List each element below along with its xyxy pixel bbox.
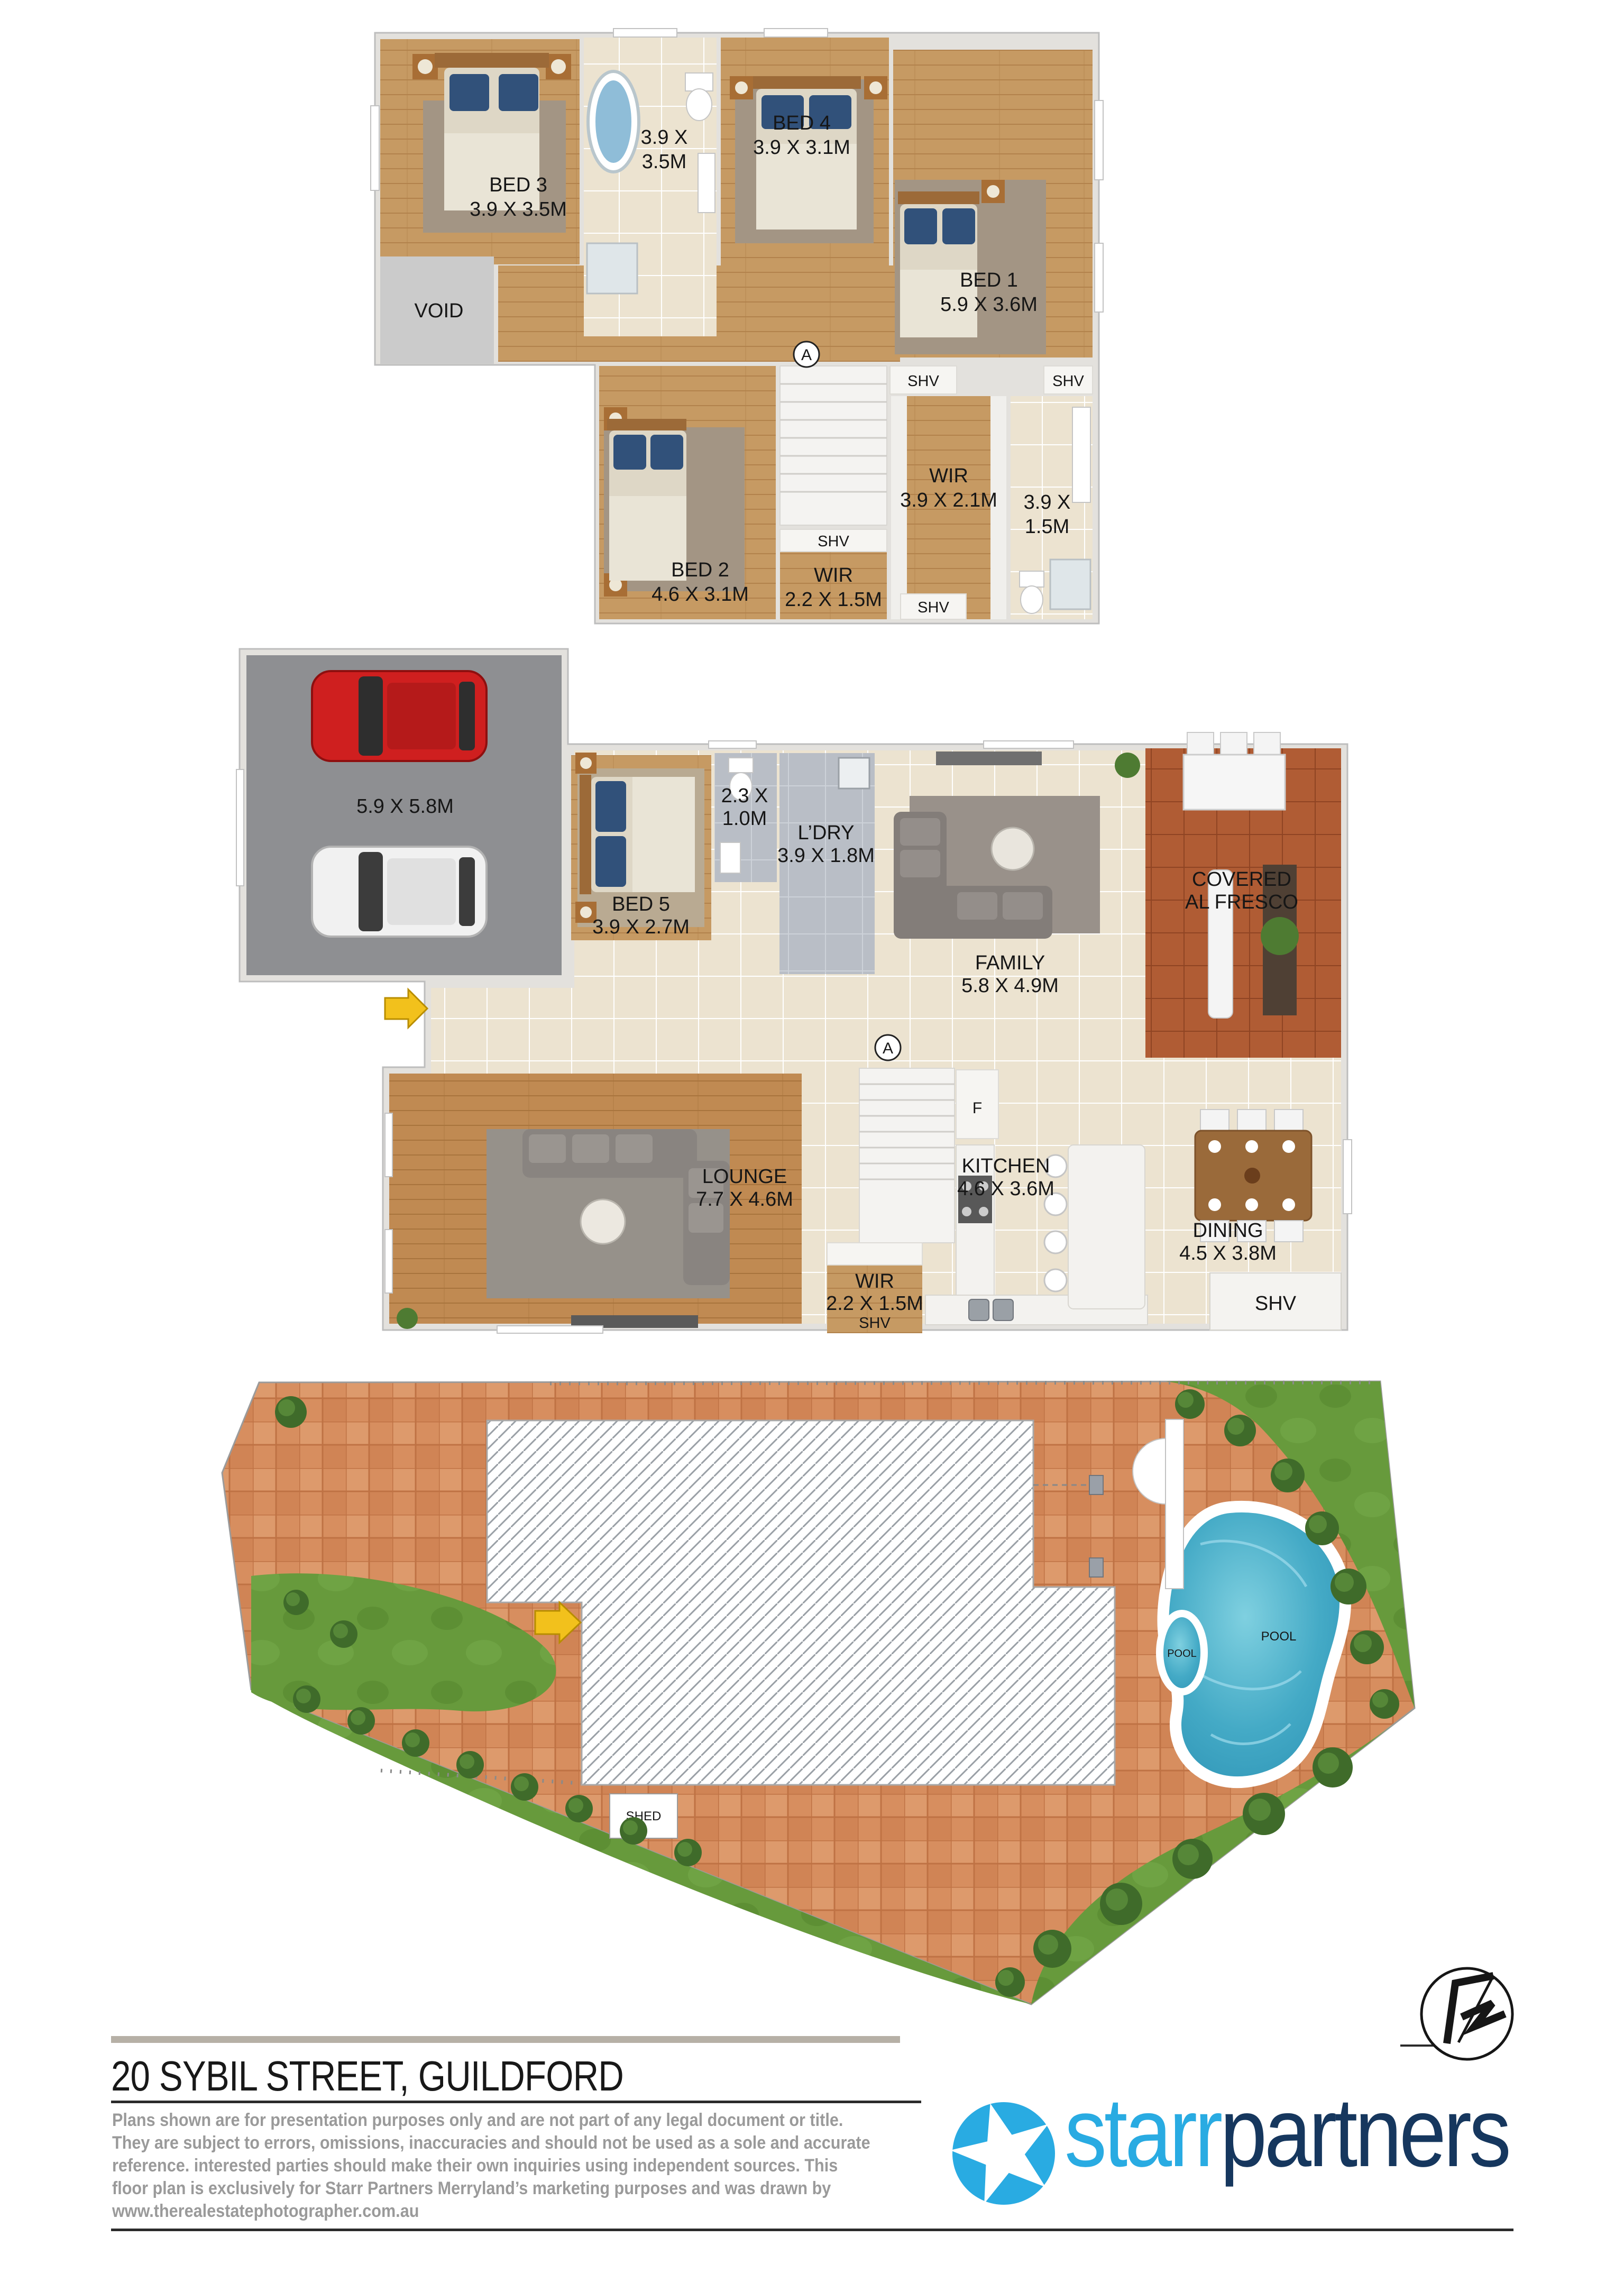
shv-shelf: SHV (1210, 1273, 1341, 1330)
starr-partners-logo: starrpartners (951, 2101, 1533, 2222)
bed4-dims: 3.9 X 3.1M (753, 136, 850, 159)
bed1-label: BED 1 (960, 269, 1018, 291)
disclaimer-line: reference. interested parties should mak… (112, 2155, 870, 2177)
ground-floor-plan: 5.9 X 5.8M BED 5 3.9 X 2.7M 2.3 X 1.0M (233, 637, 1396, 1351)
logo-part1: starr (1065, 2078, 1220, 2187)
room-lounge: LOUNGE 7.7 X 4.6M (389, 1074, 802, 1329)
disclaimer-line: Plans shown are for presentation purpose… (112, 2109, 870, 2132)
fridge-marker: F (972, 1099, 982, 1117)
bed3-label: BED 3 (489, 174, 547, 196)
wir-ground-dims: 2.2 X 1.5M (826, 1292, 923, 1315)
laundry-label: L’DRY (797, 822, 854, 844)
room-bed1: BED 1 5.9 X 3.6M (893, 50, 1093, 357)
toilet-icon (685, 73, 713, 121)
coffee-table-icon (581, 1199, 625, 1244)
logo-part2: partners (1220, 2078, 1509, 2187)
dining-dims: 4.5 X 3.8M (1179, 1242, 1277, 1264)
star-logo-icon (951, 2101, 1057, 2206)
room-garage: 5.9 X 5.8M (246, 655, 562, 975)
shv-label: SHV (1052, 373, 1084, 390)
bed5-dims: 3.9 X 2.7M (592, 916, 690, 938)
room-laundry: L’DRY 3.9 X 1.8M (777, 753, 875, 974)
void-area: VOID (380, 256, 494, 364)
room-bed2: BED 2 4.6 X 3.1M (599, 366, 776, 619)
tv-cabinet-icon (936, 751, 1042, 765)
vanity-icon (698, 153, 715, 213)
disclaimer-line: www.therealestatephotographer.com.au (112, 2200, 870, 2223)
pool-main-label: POOL (1261, 1629, 1297, 1644)
laundry-tub-icon (839, 758, 869, 789)
shv-label: SHV (818, 533, 849, 550)
site-plan: POOL POOL SHED (206, 1375, 1423, 2062)
lounge-dims: 7.7 X 4.6M (696, 1188, 793, 1211)
ensuite-dims-line1: 3.9 X (1024, 491, 1071, 514)
section-marker-letter: A (801, 346, 812, 364)
powder-dims-line1: 2.3 X (721, 785, 768, 807)
island-bench (1068, 1145, 1145, 1309)
dining-label: DINING (1193, 1220, 1263, 1242)
wir2-upper-dims: 2.2 X 1.5M (785, 589, 882, 611)
kitchen-dims: 4.6 X 3.6M (957, 1178, 1054, 1200)
disclaimer-text: Plans shown are for presentation purpose… (112, 2109, 870, 2223)
floorplan-page: BED 3 3.9 X 3.5M 3.9 X 3.5M BED 4 (0, 0, 1624, 2292)
room-wir2-upper: SHV WIR 2.2 X 1.5M (780, 529, 887, 619)
shv-shelf: SHV (901, 594, 966, 619)
bed2-label: BED 2 (671, 559, 729, 581)
alfresco-label-line2: AL FRESCO (1185, 891, 1298, 913)
disclaimer-line: floor plan is exclusively for Starr Part… (112, 2177, 870, 2200)
room-bed5: BED 5 3.9 X 2.7M (571, 753, 711, 940)
shv-shelf: SHV (1044, 366, 1093, 394)
bath-dims-line2: 3.5M (642, 151, 686, 173)
spa-pool: POOL (1160, 1613, 1204, 1692)
kitchen-label: KITCHEN (962, 1155, 1050, 1177)
pool-spa-label: POOL (1167, 1648, 1197, 1660)
void-label: VOID (415, 300, 464, 322)
logo-wordmark: starrpartners (1065, 2076, 1509, 2189)
fridge-nook: F (956, 1070, 998, 1139)
bed4-label: BED 4 (773, 112, 831, 134)
section-marker-a: A (875, 1035, 901, 1060)
room-bathroom: 3.9 X 3.5M (584, 38, 717, 336)
laundry-dims: 3.9 X 1.8M (777, 845, 875, 867)
room-wir-upper: WIR 3.9 X 2.1M (891, 396, 1006, 619)
entry-arrow-icon (385, 989, 427, 1028)
wir2-upper-label: WIR (814, 564, 853, 586)
room-dining: DINING 4.5 X 3.8M (1179, 1110, 1311, 1264)
bed2-dims: 4.6 X 3.1M (652, 583, 749, 606)
page-title: 20 SYBIL STREET, GUILDFORD (111, 2052, 623, 2101)
room-ensuite: 3.9 X 1.5M (1011, 396, 1093, 619)
toilet-icon (1020, 571, 1044, 613)
section-marker-letter: A (883, 1040, 893, 1057)
wir-ground-label: WIR (855, 1270, 894, 1292)
bathtub-icon (588, 71, 639, 172)
shower-icon (1050, 560, 1090, 609)
stairs-icon (859, 1068, 955, 1243)
shv-label: SHV (859, 1315, 891, 1332)
room-alfresco: COVERED AL FRESCO (1145, 732, 1341, 1058)
footer-rule (111, 2229, 1513, 2231)
stairs-icon (780, 366, 887, 525)
section-marker-a: A (794, 342, 819, 367)
family-dims: 5.8 X 4.9M (961, 975, 1059, 997)
shv-label: SHV (917, 599, 949, 616)
plant-icon (1115, 753, 1140, 778)
room-bed3: BED 3 3.9 X 3.5M (380, 39, 580, 264)
vanity-icon (1072, 407, 1090, 502)
garage-dims: 5.9 X 5.8M (356, 795, 454, 818)
ensuite-dims-line2: 1.5M (1025, 516, 1069, 538)
shv-label: SHV (907, 373, 939, 390)
outdoor-table-icon (1183, 732, 1285, 810)
shv-label: SHV (1255, 1292, 1297, 1315)
wir-upper-dims: 3.9 X 2.1M (900, 489, 997, 511)
compass-north-icon (1413, 1963, 1524, 2074)
white-car-icon (312, 847, 487, 937)
bed5-label: BED 5 (612, 893, 670, 915)
powder-dims-line2: 1.0M (722, 808, 767, 830)
red-car-icon (312, 671, 487, 761)
upper-floor-plan: BED 3 3.9 X 3.5M 3.9 X 3.5M BED 4 (365, 21, 1132, 629)
title-rule (111, 2101, 921, 2103)
disclaimer-line: They are subject to errors, omissions, i… (112, 2132, 870, 2155)
wir-upper-label: WIR (929, 465, 968, 487)
room-powder: 2.3 X 1.0M (714, 753, 777, 882)
house-footprint (487, 1420, 1115, 1785)
lounge-label: LOUNGE (702, 1166, 787, 1188)
title-accent-bar (111, 2036, 900, 2043)
basin-icon (720, 842, 740, 873)
room-wir-ground: WIR 2.2 X 1.5M SHV (826, 1243, 923, 1333)
family-label: FAMILY (975, 952, 1045, 974)
bath-dims-line1: 3.9 X (641, 126, 688, 149)
shower-icon (587, 243, 637, 294)
alfresco-label-line1: COVERED (1192, 868, 1291, 891)
plant-icon (397, 1308, 418, 1329)
bed1-dims: 5.9 X 3.6M (940, 294, 1038, 316)
coffee-table-icon (992, 828, 1034, 870)
room-bed4: BED 4 3.9 X 3.1M (721, 38, 889, 279)
shv-shelf: SHV (890, 366, 957, 394)
bed3-dims: 3.9 X 3.5M (470, 198, 567, 221)
